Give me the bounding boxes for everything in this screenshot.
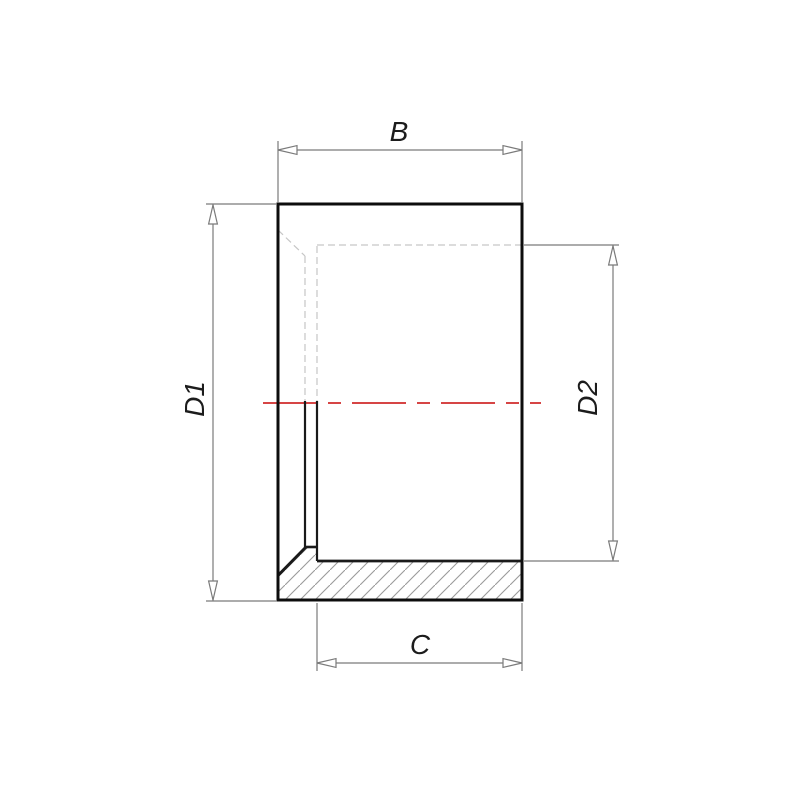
dim-b-label: B	[390, 116, 409, 147]
technical-drawing: B D1 D2	[0, 0, 800, 800]
dim-d2-label: D2	[572, 380, 603, 416]
drawing-canvas: B D1 D2	[0, 0, 800, 800]
dim-c-label: C	[410, 629, 431, 660]
dim-d1-label: D1	[179, 381, 210, 417]
